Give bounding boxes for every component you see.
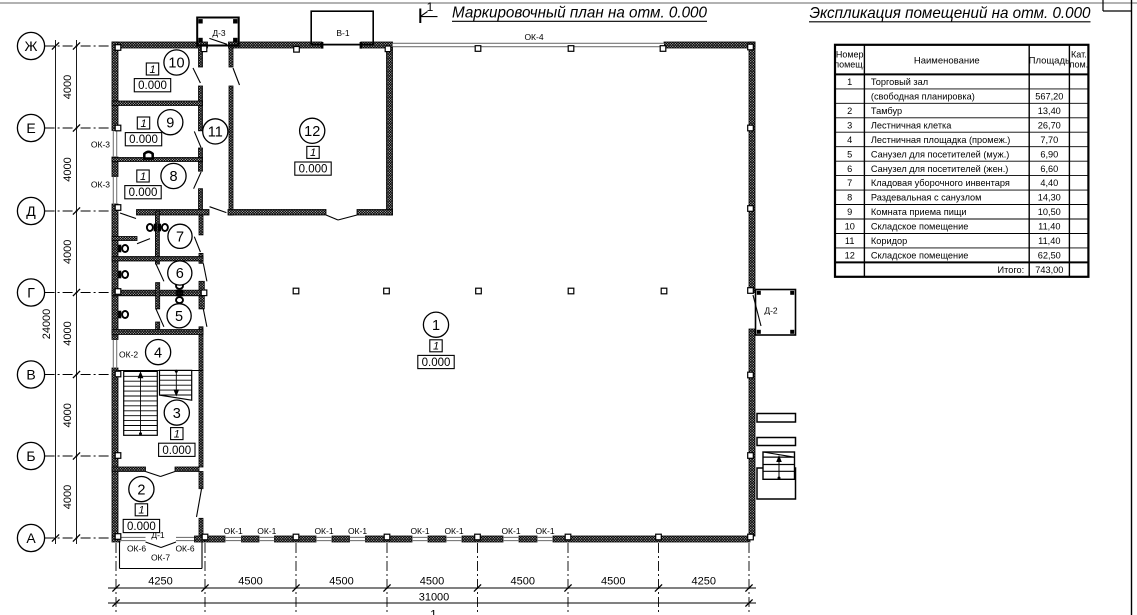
svg-text:11: 11 bbox=[845, 236, 855, 246]
svg-text:743,00: 743,00 bbox=[1035, 265, 1063, 275]
svg-text:6: 6 bbox=[847, 164, 852, 174]
svg-text:ОК-1: ОК-1 bbox=[257, 526, 276, 536]
svg-text:ОК-6: ОК-6 bbox=[175, 544, 194, 554]
svg-text:ОК-4: ОК-4 bbox=[524, 32, 543, 42]
svg-text:Лестничная клетка: Лестничная клетка bbox=[871, 120, 952, 130]
svg-text:1: 1 bbox=[140, 118, 146, 130]
svg-text:ОК-1: ОК-1 bbox=[348, 526, 367, 536]
svg-text:1: 1 bbox=[430, 608, 437, 615]
svg-text:0.000: 0.000 bbox=[299, 164, 328, 176]
svg-text:2: 2 bbox=[137, 482, 145, 498]
svg-text:Б: Б bbox=[26, 448, 35, 464]
svg-text:11: 11 bbox=[208, 125, 223, 141]
svg-text:5: 5 bbox=[847, 149, 852, 159]
svg-text:Д-3: Д-3 bbox=[212, 28, 226, 38]
svg-text:Лестничная площадка (промеж.): Лестничная площадка (промеж.) bbox=[871, 135, 1010, 145]
svg-text:10: 10 bbox=[168, 56, 184, 72]
svg-text:помещ.: помещ. bbox=[834, 59, 865, 69]
svg-text:4000: 4000 bbox=[62, 485, 74, 509]
svg-text:4: 4 bbox=[847, 135, 852, 145]
svg-text:6,60: 6,60 bbox=[1040, 164, 1058, 174]
svg-text:Комната приема пищи: Комната приема пищи bbox=[871, 207, 967, 217]
svg-text:4250: 4250 bbox=[692, 576, 716, 588]
svg-text:24000: 24000 bbox=[41, 309, 53, 340]
svg-text:В: В bbox=[26, 367, 35, 383]
svg-text:8: 8 bbox=[847, 193, 852, 203]
svg-text:ОК-3: ОК-3 bbox=[91, 140, 110, 150]
svg-text:26,70: 26,70 bbox=[1038, 120, 1061, 130]
svg-text:4: 4 bbox=[154, 345, 162, 361]
svg-text:9: 9 bbox=[166, 115, 174, 131]
svg-text:9: 9 bbox=[847, 207, 852, 217]
svg-text:4500: 4500 bbox=[420, 576, 444, 588]
svg-text:4500: 4500 bbox=[511, 576, 535, 588]
svg-text:Кат.: Кат. bbox=[1071, 49, 1087, 59]
svg-text:ОК-7: ОК-7 bbox=[151, 553, 170, 563]
svg-text:1: 1 bbox=[847, 77, 852, 87]
svg-text:4000: 4000 bbox=[62, 321, 74, 345]
svg-text:1: 1 bbox=[427, 0, 434, 14]
svg-text:10,50: 10,50 bbox=[1038, 207, 1061, 217]
svg-text:1: 1 bbox=[149, 64, 155, 76]
svg-text:ОК-1: ОК-1 bbox=[224, 526, 243, 536]
svg-text:11,40: 11,40 bbox=[1038, 222, 1060, 232]
svg-text:Тамбур: Тамбур bbox=[871, 106, 902, 116]
svg-text:5: 5 bbox=[175, 309, 183, 325]
svg-text:2: 2 bbox=[847, 106, 852, 116]
svg-text:Ж: Ж bbox=[25, 38, 38, 54]
svg-text:1: 1 bbox=[433, 341, 439, 353]
svg-text:0.000: 0.000 bbox=[127, 521, 156, 533]
svg-text:0.000: 0.000 bbox=[422, 357, 451, 369]
svg-text:12: 12 bbox=[845, 251, 855, 261]
svg-text:8: 8 bbox=[169, 169, 177, 185]
svg-text:Г: Г bbox=[27, 285, 35, 301]
svg-text:12: 12 bbox=[304, 124, 320, 140]
svg-text:ОК-6: ОК-6 bbox=[127, 544, 146, 554]
svg-text:Экспликация помещений на отм.: Экспликация помещений на отм. 0.000 bbox=[810, 5, 1091, 22]
svg-text:Складское помещение: Складское помещение bbox=[871, 222, 968, 232]
svg-text:Площадь: Площадь bbox=[1029, 55, 1070, 66]
svg-text:Коридор: Коридор bbox=[871, 236, 907, 246]
svg-text:1: 1 bbox=[174, 428, 180, 440]
svg-text:Раздевальная с санузлом: Раздевальная с санузлом bbox=[871, 193, 982, 203]
svg-text:4000: 4000 bbox=[62, 403, 74, 427]
svg-text:1: 1 bbox=[138, 505, 144, 517]
svg-text:14,30: 14,30 bbox=[1038, 193, 1061, 203]
svg-text:11,40: 11,40 bbox=[1038, 236, 1060, 246]
svg-text:ОК-1: ОК-1 bbox=[314, 526, 333, 536]
svg-text:4500: 4500 bbox=[329, 576, 353, 588]
svg-text:0.000: 0.000 bbox=[138, 80, 167, 92]
svg-text:Итого:: Итого: bbox=[998, 265, 1025, 275]
svg-text:Д: Д bbox=[26, 203, 36, 219]
svg-text:567,20: 567,20 bbox=[1035, 92, 1063, 102]
svg-text:31000: 31000 bbox=[419, 592, 450, 604]
svg-text:4,40: 4,40 bbox=[1040, 178, 1058, 188]
svg-text:ОК-1: ОК-1 bbox=[501, 526, 520, 536]
svg-text:0.000: 0.000 bbox=[162, 445, 191, 457]
svg-text:4500: 4500 bbox=[601, 576, 625, 588]
svg-text:Складское помещение: Складское помещение bbox=[871, 251, 968, 261]
svg-text:В-1: В-1 bbox=[336, 28, 350, 38]
svg-text:62,50: 62,50 bbox=[1038, 251, 1061, 261]
svg-text:0.000: 0.000 bbox=[129, 134, 158, 146]
svg-text:7: 7 bbox=[176, 230, 184, 246]
svg-text:Наименование: Наименование bbox=[914, 55, 980, 66]
svg-text:ОК-3: ОК-3 bbox=[91, 180, 110, 190]
svg-text:10: 10 bbox=[845, 222, 855, 232]
svg-text:13,40: 13,40 bbox=[1038, 106, 1061, 116]
svg-text:Номер: Номер bbox=[836, 49, 864, 59]
svg-text:Маркировочный план на отм. 0.0: Маркировочный план на отм. 0.000 bbox=[452, 5, 707, 22]
svg-text:1: 1 bbox=[310, 147, 316, 159]
svg-text:ОК-1: ОК-1 bbox=[535, 526, 554, 536]
svg-text:А: А bbox=[26, 530, 36, 546]
svg-text:Кладовая уборочного инвентаря: Кладовая уборочного инвентаря bbox=[871, 178, 1010, 188]
svg-text:1: 1 bbox=[432, 318, 440, 334]
svg-text:ОК-2: ОК-2 bbox=[119, 350, 138, 360]
svg-text:6,90: 6,90 bbox=[1040, 149, 1058, 159]
svg-text:пом.: пом. bbox=[1070, 59, 1089, 69]
svg-text:4000: 4000 bbox=[62, 240, 74, 264]
svg-text:Д-2: Д-2 bbox=[764, 306, 778, 316]
svg-text:4250: 4250 bbox=[148, 576, 172, 588]
svg-text:3: 3 bbox=[847, 120, 852, 130]
svg-text:4000: 4000 bbox=[62, 157, 74, 181]
svg-text:7,70: 7,70 bbox=[1040, 135, 1058, 145]
svg-text:1: 1 bbox=[140, 171, 146, 183]
svg-text:6: 6 bbox=[176, 266, 184, 282]
svg-text:Санузел для посетителей (муж.): Санузел для посетителей (муж.) bbox=[871, 149, 1009, 159]
svg-text:7: 7 bbox=[847, 178, 852, 188]
svg-text:3: 3 bbox=[173, 406, 181, 422]
svg-text:(свободная планировка): (свободная планировка) bbox=[871, 92, 975, 102]
svg-text:4500: 4500 bbox=[238, 576, 262, 588]
svg-text:Торговый зал: Торговый зал bbox=[871, 77, 928, 87]
svg-text:Е: Е bbox=[26, 120, 35, 136]
svg-text:ОК-1: ОК-1 bbox=[410, 526, 429, 536]
svg-text:4000: 4000 bbox=[62, 75, 74, 99]
svg-text:ОК-1: ОК-1 bbox=[444, 526, 463, 536]
svg-text:Санузел для посетителей (жен.): Санузел для посетителей (жен.) bbox=[871, 164, 1008, 174]
svg-text:0.000: 0.000 bbox=[129, 187, 158, 199]
